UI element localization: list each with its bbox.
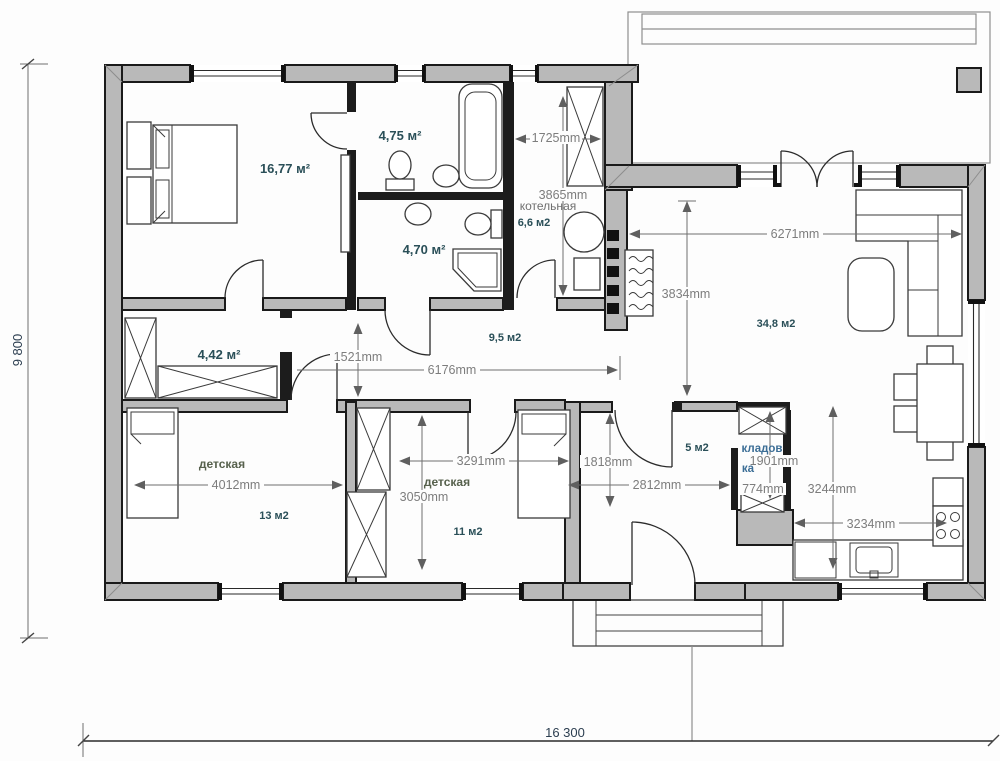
room-label-wardrobe-area: 4,42 м² (198, 347, 242, 362)
dim-hall-height: 1818mm (584, 455, 633, 469)
toilet-2 (465, 210, 502, 238)
window-kids2 (462, 583, 523, 600)
room-label-bath1-area: 4,75 м² (379, 128, 423, 143)
door-boiler (517, 260, 555, 298)
wardrobe-kids2-b (347, 492, 386, 577)
wardrobe-wide (158, 366, 277, 398)
dim-overall-width: 16 300 (545, 725, 585, 740)
dim-corridor-width: 1521mm (334, 350, 383, 364)
room-label-pantry-line2: ка (742, 463, 755, 475)
dim-pantry-width: 774mm (742, 482, 784, 496)
door-french-terrace (777, 151, 858, 187)
door-kids2 (468, 412, 516, 460)
pantry-shelf-top (739, 407, 786, 434)
terrace-column (957, 68, 981, 92)
double-bed (127, 122, 237, 224)
room-label-boiler-area: 6,6 м2 (518, 217, 551, 229)
window-living-1 (737, 165, 777, 187)
window-dining-tall (968, 300, 985, 447)
wardrobe-kids2-a (357, 408, 390, 490)
dim-living-height: 3834mm (662, 287, 711, 301)
boiler-equipment (574, 258, 600, 290)
room-label-boiler-name: котельная (520, 199, 576, 213)
window-bedroom (190, 65, 285, 82)
furniture (125, 84, 963, 580)
fireplace (625, 250, 653, 316)
window-living-2 (858, 165, 900, 187)
room-label-kids2-area: 11 м2 (454, 526, 483, 538)
sink-2 (405, 203, 431, 225)
room-label-kids1-name: детская (199, 457, 245, 471)
overall-width-dim (78, 723, 999, 757)
window-kitchen (838, 583, 927, 600)
door-bedroom (225, 260, 263, 298)
boiler (564, 212, 604, 252)
dim-kids2-height: 3050mm (400, 490, 449, 504)
dim-kids2-width: 3291mm (457, 454, 506, 468)
dim-boiler-width: 1725mm (532, 131, 581, 145)
room-label-living-area: 34,8 м2 (757, 318, 796, 330)
room-label-bedroom-area: 16,77 м² (260, 161, 311, 176)
door-entry (632, 522, 695, 585)
bathtub (459, 84, 502, 188)
wardrobe-tall (125, 318, 156, 398)
terrace (628, 12, 990, 163)
room-label-hall-area: 5 м2 (685, 442, 708, 454)
room-label-hallway-area: 9,5 м2 (489, 332, 522, 344)
dim-pantry-height: 1901mm (750, 454, 799, 468)
coffee-table (848, 258, 894, 331)
stove (933, 506, 963, 546)
bed-kids2 (518, 410, 570, 518)
dining-table (894, 346, 963, 460)
pantry-shelf-bottom (741, 494, 784, 512)
dim-kids1-width: 4012mm (212, 478, 261, 492)
tv-console (341, 155, 350, 252)
toilet-1 (386, 151, 414, 190)
entry-porch (573, 600, 783, 741)
dim-kitchen-width: 3234mm (847, 517, 896, 531)
floor-plan-canvas: 16,77 м² 4,75 м² 4,70 м² 4,42 м² 1725mm … (0, 0, 1000, 761)
bed-kids1 (127, 408, 178, 518)
floor-plan-page: 16,77 м² 4,75 м² 4,70 м² 4,42 м² 1725mm … (0, 0, 1000, 761)
window-top-small-1 (395, 65, 425, 82)
dim-overall-height: 9 800 (10, 334, 25, 367)
dim-corridor-length: 6176mm (428, 363, 477, 377)
window-top-small-2 (510, 65, 538, 82)
room-label-kids1-area: 13 м2 (259, 510, 289, 522)
dim-kitchen-height: 3244mm (808, 482, 857, 496)
dim-hall-width: 2812mm (633, 478, 682, 492)
door-bath1 (311, 113, 347, 149)
dim-living-width: 6271mm (771, 227, 820, 241)
sink-1 (433, 165, 459, 187)
door-bath2 (385, 310, 430, 355)
room-label-bath2-area: 4,70 м² (403, 242, 447, 257)
corner-shower (453, 249, 501, 291)
room-label-kids2-name: детская (424, 475, 470, 489)
window-kids1 (218, 583, 283, 600)
